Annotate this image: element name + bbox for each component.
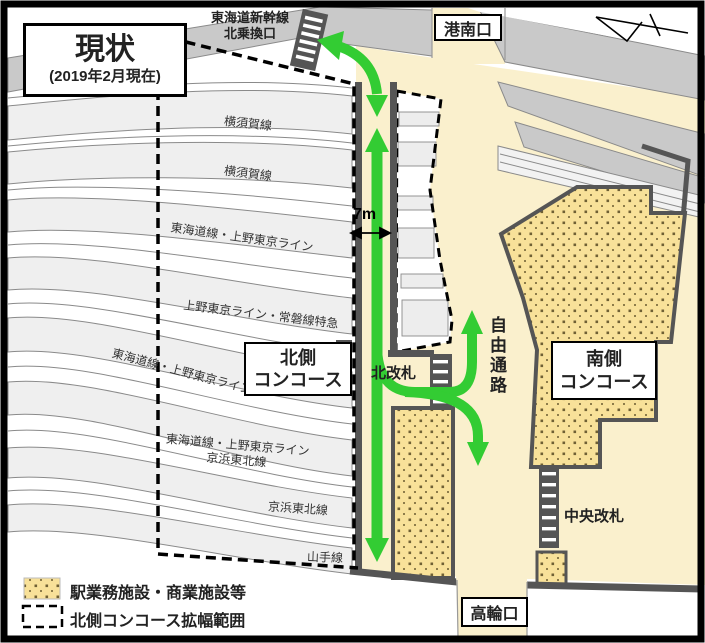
legend-expansion-swatch (23, 606, 62, 627)
station-plan: 現状 (2019年2月現在) 東海道新幹線 北乗換口 港南口 高輪口 横須賀線 … (0, 0, 705, 643)
legend-facility-label: 駅業務施設・商業施設等 (70, 579, 246, 603)
corridor-width-label: 7m (353, 206, 376, 224)
north-concourse-box: 北側 コンコース (244, 342, 352, 396)
track-label-yamanote: 山手線 (307, 548, 344, 566)
north-facility-box (393, 408, 453, 578)
konan-exit-label: 港南口 (434, 14, 502, 41)
central-gate-label: 中央改札 (564, 505, 624, 526)
title-subtitle: (2019年2月現在) (49, 65, 161, 86)
legend-expansion-label: 北側コンコース拡幅範囲 (70, 607, 245, 631)
south-concourse-box: 南側 コンコース (551, 341, 657, 400)
title-box: 現状 (2019年2月現在) (23, 23, 187, 97)
north-gate-label: 北改札 (371, 362, 416, 383)
free-passage-label: 自由通路 (484, 316, 509, 416)
takanawa-exit-label: 高輪口 (461, 597, 528, 627)
title-heading: 現状 (75, 34, 135, 66)
legend-facility-swatch (24, 578, 60, 599)
shinkansen-gate-label: 東海道新幹線 北乗換口 (200, 10, 300, 43)
